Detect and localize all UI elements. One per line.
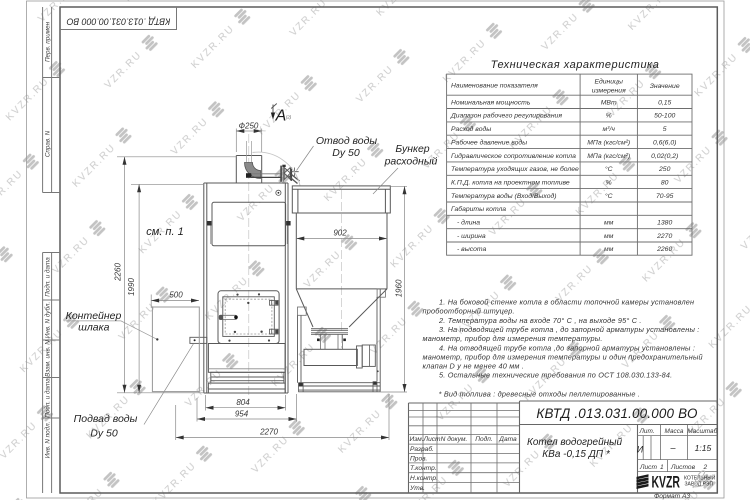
svg-text:2270: 2270 (656, 233, 672, 240)
svg-text:К.П.Д. котла на проектном топл: К.П.Д. котла на проектном топливе (451, 180, 570, 187)
svg-text:Перв. примен: Перв. примен (45, 21, 52, 62)
svg-text:902: 902 (333, 229, 347, 238)
svg-text:Взам. инв. N: Взам. инв. N (45, 340, 52, 377)
svg-text:0,6(6,0): 0,6(6,0) (653, 139, 676, 146)
svg-text:Лист: Лист (639, 464, 657, 471)
svg-text:И: И (637, 445, 644, 455)
svg-text:Инв. N подл.: Инв. N подл. (44, 422, 52, 459)
svg-text:5: 5 (663, 126, 667, 133)
svg-text:Единицы: Единицы (594, 78, 622, 86)
svg-text:1960: 1960 (395, 279, 404, 297)
svg-text:МПа (кгс/см²): МПа (кгс/см²) (587, 139, 630, 146)
svg-text:МПа (кгс/см²): МПа (кгс/см²) (587, 153, 630, 160)
svg-text:–: – (669, 443, 676, 453)
svg-text:2260: 2260 (114, 263, 123, 282)
svg-text:- высота: - высота (457, 246, 486, 253)
svg-text:МВт: МВт (601, 99, 617, 106)
svg-text:2: 2 (703, 464, 708, 471)
svg-text:клапан D у не менее 40 мм .: клапан D у не менее 40 мм . (423, 362, 525, 371)
svg-text:1:15: 1:15 (695, 443, 712, 453)
svg-text:Изм.Лист: Изм.Лист (410, 436, 442, 443)
svg-text:Бункер: Бункер (395, 143, 429, 155)
svg-text:804: 804 (236, 398, 250, 407)
svg-text:манометр, прибор для измерени: манометр, прибор для измерения температу… (423, 352, 703, 361)
svg-text:Габариты котла: Габариты котла (451, 205, 506, 213)
svg-text:расходный: расходный (384, 156, 438, 168)
svg-text:Подвад воды: Подвад воды (74, 413, 138, 425)
svg-text:мм: мм (604, 246, 614, 253)
svg-text:(2): (2) (286, 115, 292, 120)
svg-text:манометр, прибор для измерени: манометр, прибор для измерения температу… (423, 334, 603, 343)
svg-text:2270: 2270 (259, 428, 278, 437)
svg-text:2260: 2260 (656, 246, 672, 253)
svg-text:Температура уходящих газов, не: Температура уходящих газов, не более (451, 165, 579, 173)
svg-text:мм: мм (604, 233, 614, 240)
svg-text:500: 500 (169, 291, 183, 300)
svg-text:А: А (275, 108, 287, 125)
svg-text:%: % (606, 180, 612, 187)
svg-text:1990: 1990 (127, 278, 136, 296)
svg-text:Справ. N: Справ. N (45, 130, 52, 157)
svg-text:3. На подводящей трубе котла: 3. На подводящей трубе котла , до запорн… (439, 325, 699, 334)
svg-text:Разраб.: Разраб. (410, 445, 434, 453)
svg-text:Температура воды (Вход/Выход): Температура воды (Вход/Выход) (451, 192, 557, 200)
svg-text:Техническая характеристика: Техническая характеристика (491, 59, 660, 71)
svg-text:КОТЕЛЬНЫЙ: КОТЕЛЬНЫЙ (684, 474, 716, 482)
svg-text:°С: °С (605, 165, 613, 173)
svg-text:см. п. 1: см. п. 1 (146, 226, 183, 238)
svg-text:Подп.: Подп. (475, 435, 493, 443)
svg-text:КВТД .013.031.00.000 ВО: КВТД .013.031.00.000 ВО (536, 406, 698, 421)
svg-text:50-100: 50-100 (654, 113, 675, 120)
svg-text:Подп. и дата: Подп. и дата (44, 257, 52, 297)
svg-text:шлака: шлака (78, 322, 109, 334)
svg-text:Значение: Значение (650, 83, 680, 90)
svg-text:80: 80 (661, 180, 669, 187)
svg-text:Ф250: Ф250 (239, 122, 259, 131)
svg-text:0,15: 0,15 (658, 99, 671, 106)
svg-text:4. На отводящей трубе котла ,: 4. На отводящей трубе котла ,до запорной… (439, 343, 695, 352)
svg-text:1380: 1380 (657, 220, 672, 227)
svg-text:Подп. и дата: Подп. и дата (44, 378, 52, 418)
svg-text:КВТД .013.031.00.000 ВО: КВТД .013.031.00.000 ВО (67, 17, 171, 27)
svg-text:Инв. N дубл.: Инв. N дубл. (44, 302, 52, 338)
svg-text:Утв.: Утв. (409, 485, 425, 492)
svg-text:Котел водогрейный: Котел водогрейный (527, 437, 623, 448)
svg-text:Диапазон рабочего регулировани: Диапазон рабочего регулирования (450, 112, 562, 120)
svg-text:Масштаб: Масштаб (687, 427, 717, 435)
svg-text:Т.контр.: Т.контр. (410, 465, 437, 472)
svg-text:Dy 50: Dy 50 (332, 147, 360, 159)
svg-text:Рабочее давление воды: Рабочее давление воды (451, 138, 527, 146)
svg-text:Контейнер: Контейнер (66, 310, 122, 322)
svg-text:Лит.: Лит. (639, 428, 655, 435)
svg-text:5. Остальные технические треб: 5. Остальные технические требования по О… (439, 371, 672, 380)
svg-text:мм: мм (604, 220, 614, 227)
svg-text:Листов: Листов (670, 464, 696, 471)
svg-text:°С: °С (605, 192, 613, 200)
svg-text:Гидравлическое сопротивление к: Гидравлическое сопротивление котла (451, 152, 576, 160)
svg-text:Н.контр.: Н.контр. (410, 475, 438, 482)
svg-text:КВа -0,15 ДП *: КВа -0,15 ДП * (542, 449, 611, 460)
svg-text:N докум.: N докум. (441, 435, 468, 443)
svg-text:- длина: - длина (457, 219, 480, 227)
svg-text:измерения: измерения (592, 88, 626, 95)
svg-text:м³/ч: м³/ч (603, 126, 616, 133)
svg-text:Отвод воды: Отвод воды (316, 135, 378, 147)
svg-text:Наименование показателя: Наименование показателя (451, 83, 538, 90)
svg-text:Масса: Масса (665, 428, 684, 435)
svg-text:Дата: Дата (498, 436, 517, 443)
svg-text:KVZR: KVZR (652, 474, 681, 492)
svg-text:1: 1 (660, 464, 664, 471)
svg-text:Пров.: Пров. (410, 455, 428, 462)
svg-text:* Вид топлива : древесные от: * Вид топлива : древесные отходы пеллети… (439, 389, 640, 398)
svg-text:954: 954 (235, 410, 249, 419)
svg-text:Формат А3: Формат А3 (654, 493, 690, 500)
svg-text:70-95: 70-95 (656, 193, 674, 200)
svg-text:2. Температура воды на входе: 2. Температура воды на входе 70° С , на … (438, 316, 642, 325)
svg-text:%: % (606, 113, 612, 120)
svg-text:1. На боковой стенке котла в: 1. На боковой стенке котла в области топ… (439, 298, 694, 307)
svg-text:Номинальная мощность: Номинальная мощность (451, 99, 531, 106)
svg-text:пробоотборный штуцер.: пробоотборный штуцер. (423, 307, 515, 316)
svg-text:0,02(0,2): 0,02(0,2) (651, 153, 678, 160)
svg-text:- ширина: - ширина (457, 233, 486, 240)
svg-text:250: 250 (658, 166, 671, 173)
svg-text:Dy 50: Dy 50 (90, 428, 118, 440)
svg-text:Расход воды: Расход воды (451, 125, 491, 133)
